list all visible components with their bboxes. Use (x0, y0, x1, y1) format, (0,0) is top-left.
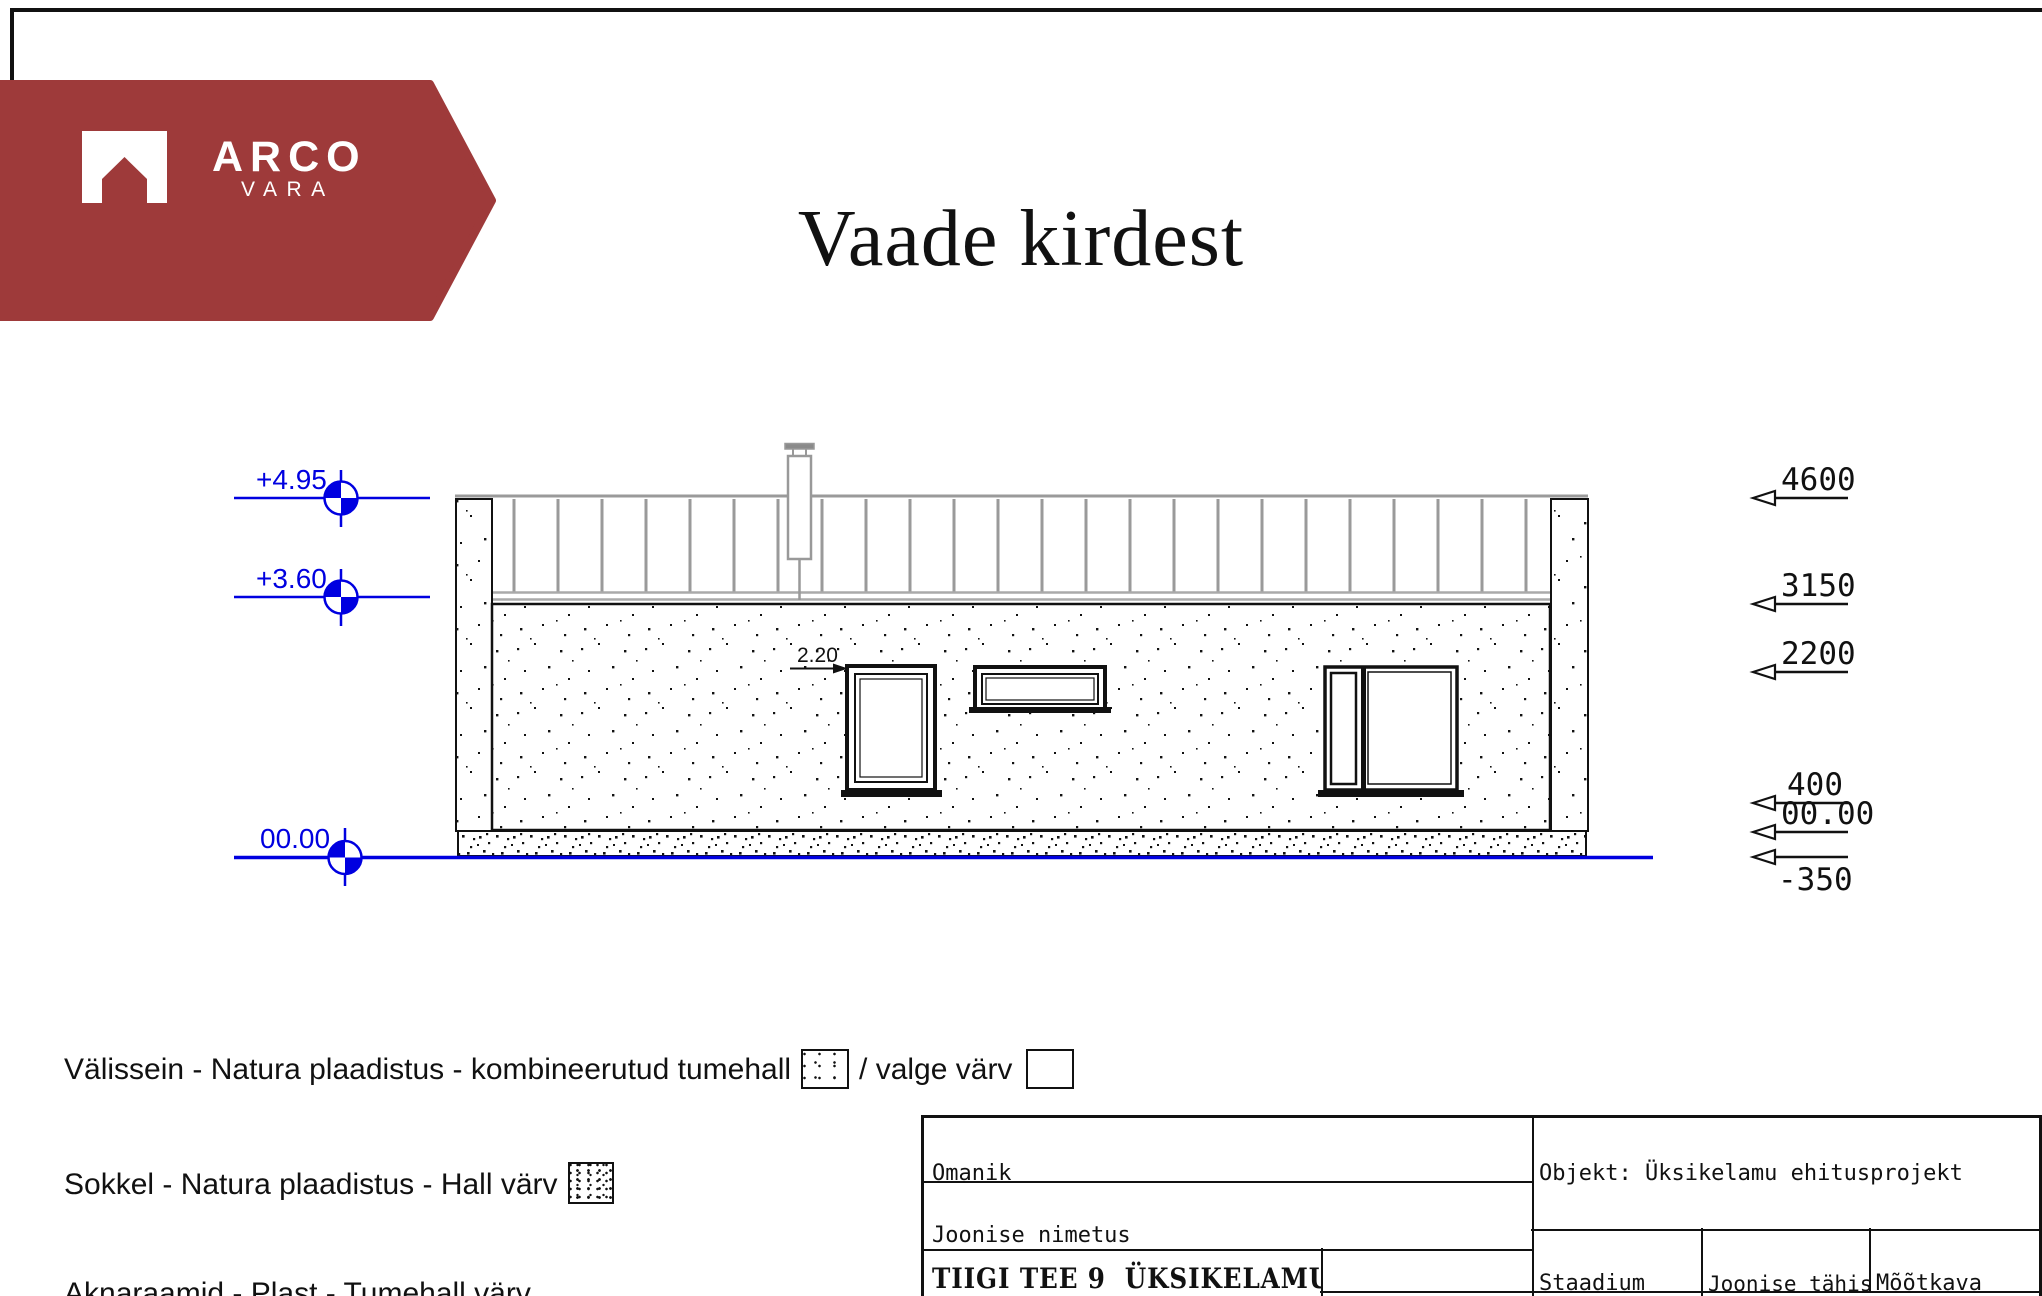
project-title: TIIGI TEE 9 ÜKSIKELAMU (932, 1262, 1323, 1295)
window-middle-sill (969, 707, 1111, 713)
left-pilaster (456, 499, 492, 831)
dim-label: 4600 (1781, 462, 1856, 498)
work-number-cell: Töö number (1531, 1290, 1703, 1296)
level-marker-000: 00.00 (260, 823, 362, 886)
dim-marker-3150: 3150 (1753, 568, 1856, 611)
brand-banner: ARCO VARA (0, 0, 520, 340)
brand-subname: VARA (241, 178, 335, 201)
scale-cell: Mõõtkava 1:100 (1868, 1228, 2042, 1293)
dim-marker-4600: 4600 (1753, 462, 1856, 505)
window-middle (969, 667, 1111, 713)
window-height-label: 2.20 (797, 644, 838, 667)
dim-label: 3150 (1781, 568, 1856, 604)
roof-seams (514, 499, 1526, 592)
legend-text: / valge värv (859, 1053, 1012, 1086)
stage-cell: Staadium EELPROJEKT (1531, 1228, 1703, 1293)
level-label: +3.60 (256, 563, 327, 594)
material-swatch-dark-icon (801, 1049, 849, 1089)
signature-cell: Allkiri/kuupäev (1700, 1290, 2042, 1296)
drawing-name-cell: Joonise nimetus Külgvaade A (924, 1180, 1534, 1251)
drawing-name-label: Joonise nimetus (932, 1222, 1524, 1250)
dim-label: -350 (1778, 862, 1853, 898)
designer-cell: Projekteerija Mereääre Grupp (1320, 1248, 1534, 1293)
title-block: Omanik Eraisik Joonise nimetus Külgvaade… (921, 1115, 2042, 1296)
dim-marker-minus350: -350 (1753, 850, 1853, 898)
chimney-body (788, 456, 811, 559)
level-marker-360: +3.60 (234, 563, 430, 626)
brand-name: ARCO (212, 133, 367, 181)
elevation-drawing: 2.20 +4.95 +3.60 00.00 (0, 430, 2042, 900)
material-swatch-grey-icon (568, 1162, 614, 1204)
dim-marker-2200: 2200 (1753, 636, 1856, 679)
legend-text: Välissein - Natura plaadistus - kombinee… (64, 1053, 791, 1086)
owner-cell: Omanik Eraisik (924, 1118, 1534, 1183)
plinth (458, 831, 1586, 856)
object-cell: Objekt: Üksikelamu ehitusprojekt Tiigi t… (1531, 1118, 2042, 1231)
drawing-sheet: ARCO VARA Vaade kirdest (0, 0, 2042, 1296)
window-right (1318, 667, 1464, 797)
project-title-cell: TIIGI TEE 9 ÜKSIKELAMU (924, 1248, 1323, 1296)
level-label: +4.95 (256, 464, 327, 495)
dim-label: 2200 (1781, 636, 1856, 672)
legend-line-wall: Välissein - Natura plaadistus - kombinee… (64, 1049, 1084, 1089)
chimney-cap (785, 444, 814, 450)
page-title: Vaade kirdest (798, 194, 1244, 285)
legend-text: Sokkel - Natura plaadistus - Hall värv (64, 1168, 558, 1201)
material-swatch-white-icon (1026, 1049, 1074, 1089)
level-label: 00.00 (260, 823, 330, 854)
project-manager-cell: Projekti juht (1320, 1290, 1534, 1296)
right-pilaster (1551, 499, 1588, 831)
dim-label: 00.00 (1781, 796, 1874, 832)
level-marker-495: +4.95 (234, 464, 430, 527)
window-left-sill (841, 790, 942, 797)
window-left (841, 666, 942, 797)
sheet-code-cell: Joonise tähis AE-6 (1700, 1228, 1871, 1293)
object-label: Objekt: Üksikelamu ehitusprojekt (1539, 1160, 2037, 1188)
window-right-sill (1318, 790, 1464, 797)
